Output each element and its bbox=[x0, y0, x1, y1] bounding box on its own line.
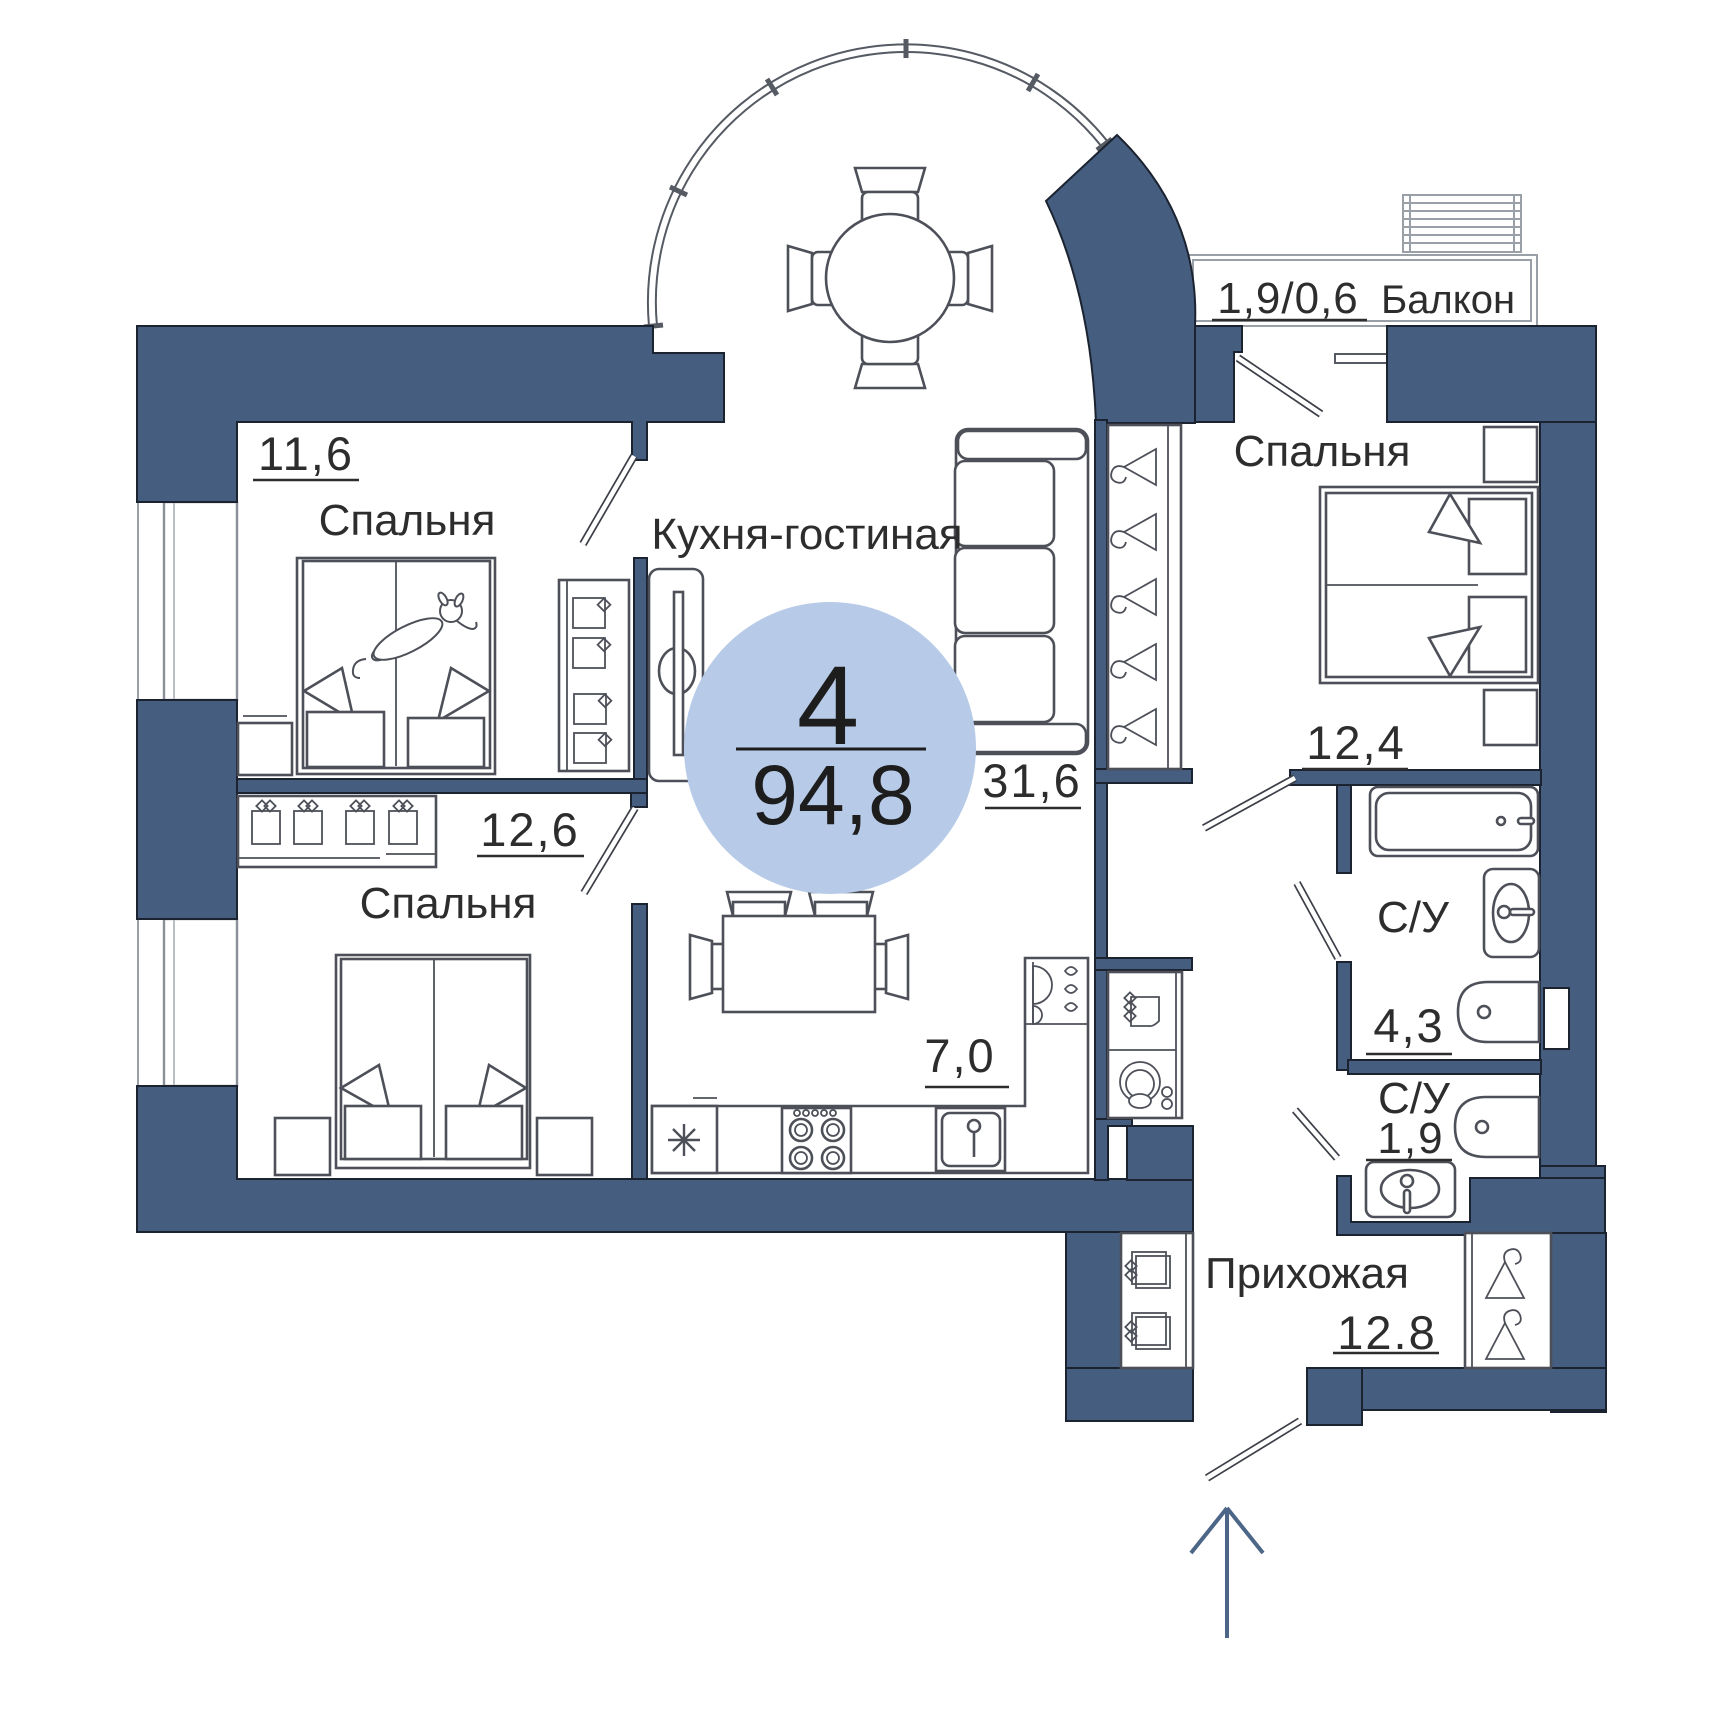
svg-text:Балкон: Балкон bbox=[1381, 278, 1515, 322]
svg-text:Спальня: Спальня bbox=[360, 879, 537, 928]
svg-text:11,6: 11,6 bbox=[258, 427, 354, 480]
svg-text:1,9: 1,9 bbox=[1377, 1114, 1444, 1163]
svg-text:Спальня: Спальня bbox=[319, 496, 496, 545]
svg-text:1,9/0,6: 1,9/0,6 bbox=[1217, 274, 1359, 323]
svg-text:94,8: 94,8 bbox=[751, 748, 915, 842]
svg-text:4,3: 4,3 bbox=[1373, 999, 1444, 1052]
svg-text:12,6: 12,6 bbox=[480, 803, 579, 856]
svg-text:12.8: 12.8 bbox=[1337, 1306, 1436, 1359]
svg-text:Кухня-гостиная: Кухня-гостиная bbox=[651, 510, 962, 559]
svg-text:12,4: 12,4 bbox=[1306, 716, 1405, 769]
svg-text:Спальня: Спальня bbox=[1234, 427, 1411, 476]
svg-text:31,6: 31,6 bbox=[982, 754, 1081, 807]
svg-text:С/У: С/У bbox=[1377, 893, 1450, 942]
svg-text:7,0: 7,0 bbox=[924, 1029, 995, 1082]
svg-text:Прихожая: Прихожая bbox=[1205, 1249, 1409, 1298]
